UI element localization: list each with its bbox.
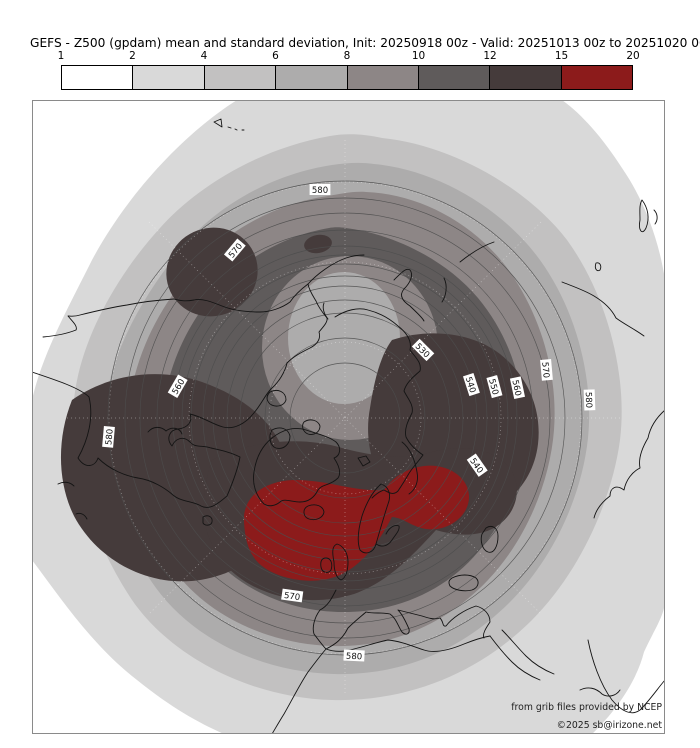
svg-text:580: 580: [312, 186, 328, 196]
colorbar-tick-8: 8: [344, 50, 351, 62]
colorbar-bin-15-20: [561, 66, 632, 89]
attribution-source: from grib files provided by NCEP: [511, 702, 662, 713]
colorbar-bin-4-6: [204, 66, 275, 89]
colorbar-tick-2: 2: [129, 50, 136, 62]
contour-label-580: 580: [102, 426, 116, 448]
svg-text:580: 580: [104, 428, 115, 445]
colorbar: [61, 65, 633, 90]
chart-title: GEFS - Z500 (gpdam) mean and standard de…: [30, 36, 700, 50]
colorbar-tick-20: 20: [626, 50, 639, 62]
svg-text:580: 580: [346, 652, 363, 663]
contour-label-580: 580: [343, 649, 364, 662]
colorbar-tick-4: 4: [201, 50, 208, 62]
contour-label-580: 580: [583, 389, 596, 410]
colorbar-tick-6: 6: [272, 50, 279, 62]
page: { "title": "GEFS - Z500 (gpdam) mean and…: [0, 0, 700, 748]
svg-text:580: 580: [583, 392, 594, 409]
map-canvas: 580570560580530540550560570580540570580 …: [32, 100, 665, 734]
colorbar-bin-8-10: [347, 66, 418, 89]
colorbar-tick-1: 1: [58, 50, 65, 62]
svg-text:570: 570: [539, 361, 550, 378]
colorbar-bin-10-12: [418, 66, 489, 89]
map-area: 580570560580530540550560570580540570580 …: [32, 100, 665, 734]
colorbar-tick-12: 12: [483, 50, 496, 62]
stddev-shading: [32, 100, 665, 734]
colorbar-bin-12-15: [489, 66, 560, 89]
colorbar-tick-15: 15: [555, 50, 568, 62]
colorbar-tick-10: 10: [412, 50, 425, 62]
contour-label-580: 580: [310, 184, 331, 196]
colorbar-bin-1-2: [62, 66, 132, 89]
colorbar-ticks: 1246810121520: [61, 50, 633, 63]
contour-label-570: 570: [539, 359, 553, 381]
colorbar-bin-6-8: [275, 66, 346, 89]
attribution-copyright: ©2025 sb@irizone.net: [557, 720, 663, 731]
colorbar-bin-2-4: [132, 66, 203, 89]
